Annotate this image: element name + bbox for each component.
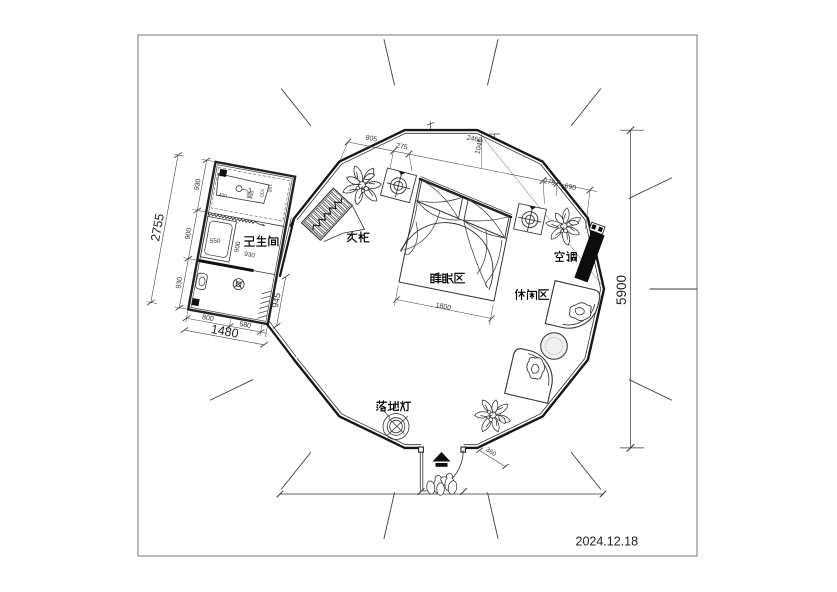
svg-text:258: 258: [245, 190, 251, 199]
svg-text:550: 550: [210, 238, 221, 245]
svg-text:700: 700: [258, 189, 264, 198]
svg-text:100: 100: [266, 184, 272, 193]
svg-text:2024.12.18: 2024.12.18: [576, 535, 639, 549]
svg-text:5900: 5900: [614, 275, 629, 305]
